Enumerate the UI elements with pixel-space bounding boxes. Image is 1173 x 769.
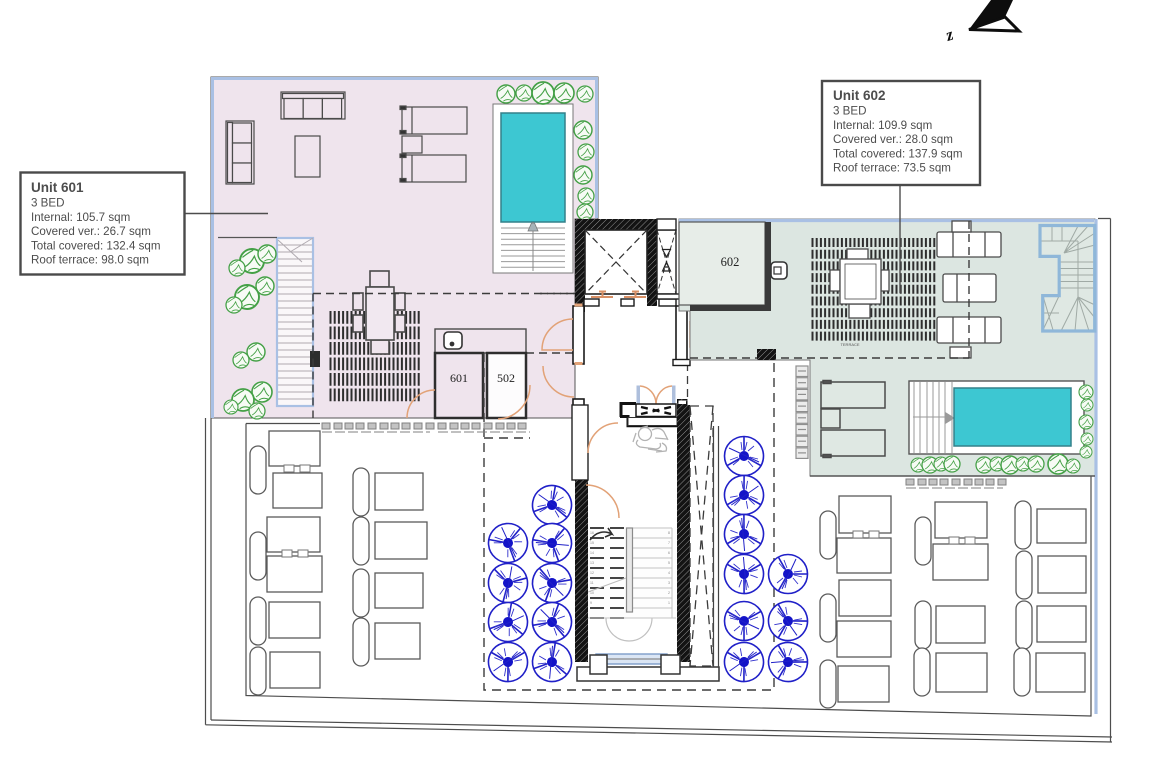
svg-text:502: 502 [497,371,515,385]
svg-text:Internal: 105.7 sqm: Internal: 105.7 sqm [31,211,130,224]
svg-text:13: 13 [590,561,594,565]
svg-text:14: 14 [590,551,594,555]
svg-text:3: 3 [668,581,670,585]
svg-text:11: 11 [590,581,594,585]
svg-text:Roof terrace: 98.0 sqm: Roof terrace: 98.0 sqm [31,254,149,267]
svg-text:12: 12 [590,571,594,575]
svg-text:2: 2 [668,591,670,595]
svg-text:Internal: 109.9 sqm: Internal: 109.9 sqm [833,119,932,132]
svg-text:15: 15 [590,541,594,545]
svg-text:Unit 602: Unit 602 [833,88,886,103]
svg-text:3 BED: 3 BED [31,197,65,210]
svg-text:TERRACE: TERRACE [840,342,859,347]
svg-text:1: 1 [668,601,670,605]
svg-text:Roof terrace: 73.5 sqm: Roof terrace: 73.5 sqm [833,162,951,175]
svg-text:602: 602 [721,255,740,269]
svg-text:8: 8 [668,531,670,535]
svg-text:10: 10 [590,591,594,595]
svg-text:7: 7 [668,541,670,545]
svg-text:Total covered: 137.9 sqm: Total covered: 137.9 sqm [833,147,963,160]
svg-text:Unit 601: Unit 601 [31,180,84,195]
svg-text:4: 4 [668,571,670,575]
svg-text:16: 16 [590,531,594,535]
svg-text:9: 9 [590,601,592,605]
svg-text:Total covered: 132.4 sqm: Total covered: 132.4 sqm [31,239,161,252]
svg-text:3 BED: 3 BED [833,105,867,118]
svg-text:Covered ver.: 28.0 sqm: Covered ver.: 28.0 sqm [833,133,953,146]
svg-text:Covered ver.: 26.7 sqm: Covered ver.: 26.7 sqm [31,225,151,238]
svg-text:6: 6 [668,551,670,555]
svg-text:601: 601 [450,371,468,385]
svg-text:5: 5 [668,561,670,565]
